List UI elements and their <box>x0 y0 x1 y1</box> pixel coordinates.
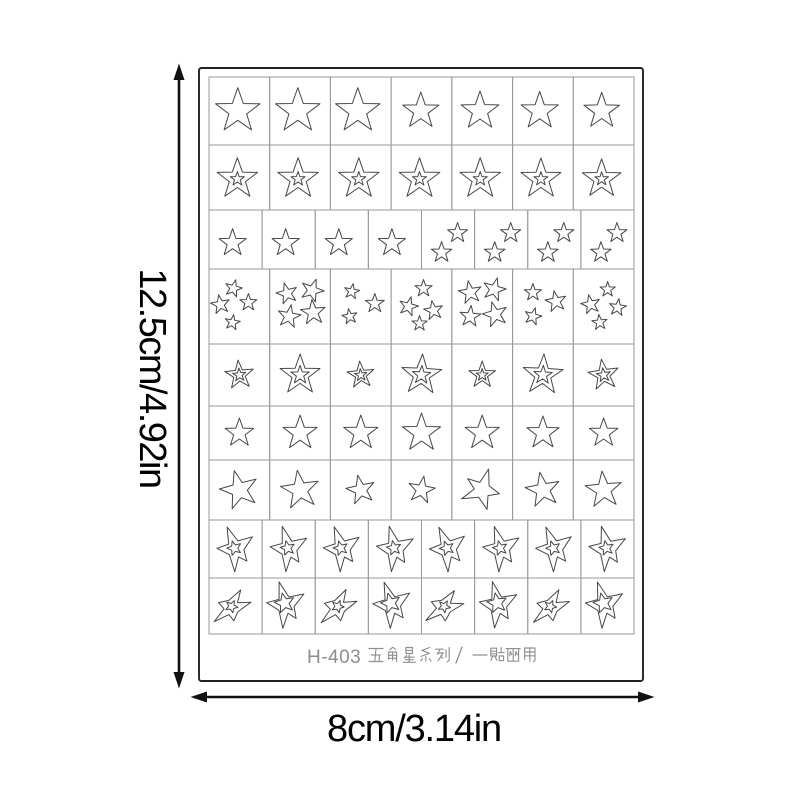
svg-text:H-403: H-403 <box>307 647 361 668</box>
svg-text:8cm/3.14in: 8cm/3.14in <box>327 708 501 750</box>
svg-text:12.5cm/4.92in: 12.5cm/4.92in <box>131 268 173 487</box>
